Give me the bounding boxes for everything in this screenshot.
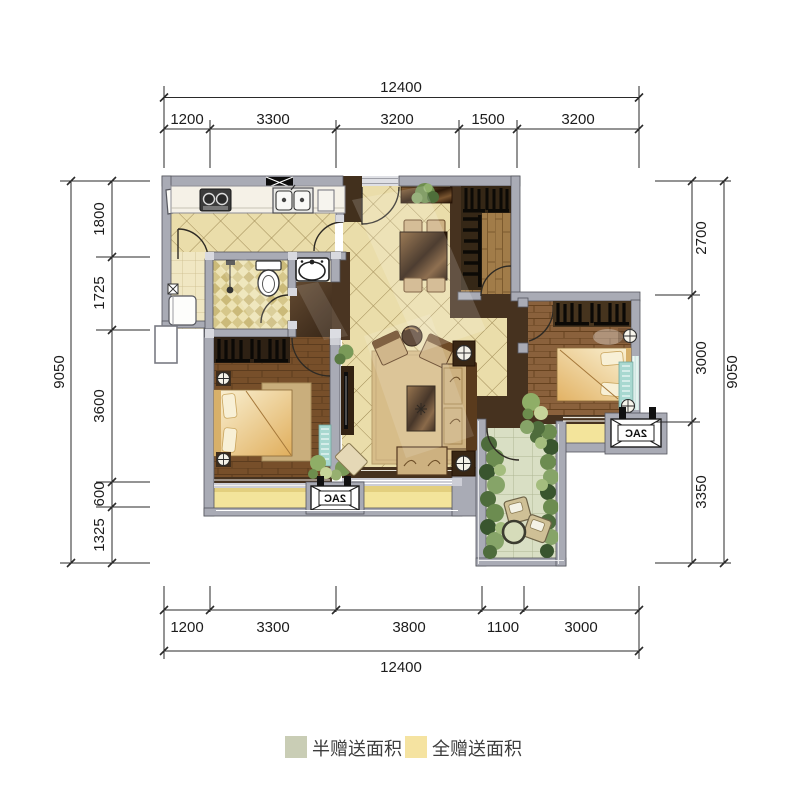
svg-text:3000: 3000 (564, 619, 597, 636)
svg-text:2AC: 2AC (625, 428, 647, 440)
svg-text:1500: 1500 (471, 111, 504, 128)
svg-text:12400: 12400 (380, 659, 422, 676)
svg-text:3200: 3200 (561, 111, 594, 128)
svg-text:3350: 3350 (693, 475, 710, 508)
svg-text:3300: 3300 (256, 619, 289, 636)
svg-text:2AC: 2AC (324, 493, 346, 505)
svg-text:1800: 1800 (91, 202, 108, 235)
svg-text:1325: 1325 (91, 518, 108, 551)
svg-text:全赠送面积: 全赠送面积 (432, 739, 522, 759)
svg-text:半赠送面积: 半赠送面积 (312, 739, 402, 759)
svg-text:3000: 3000 (693, 341, 710, 374)
svg-text:9050: 9050 (724, 355, 741, 388)
svg-text:1100: 1100 (487, 619, 519, 636)
svg-text:600: 600 (91, 481, 108, 506)
svg-text:1200: 1200 (170, 619, 203, 636)
svg-text:1725: 1725 (91, 276, 108, 309)
svg-text:12400: 12400 (380, 79, 422, 96)
svg-text:3600: 3600 (91, 389, 108, 422)
svg-text:1200: 1200 (170, 111, 203, 128)
svg-text:3800: 3800 (392, 619, 425, 636)
svg-text:3200: 3200 (380, 111, 413, 128)
svg-text:9050: 9050 (51, 355, 68, 388)
svg-text:2700: 2700 (693, 221, 710, 254)
svg-text:3300: 3300 (256, 111, 289, 128)
